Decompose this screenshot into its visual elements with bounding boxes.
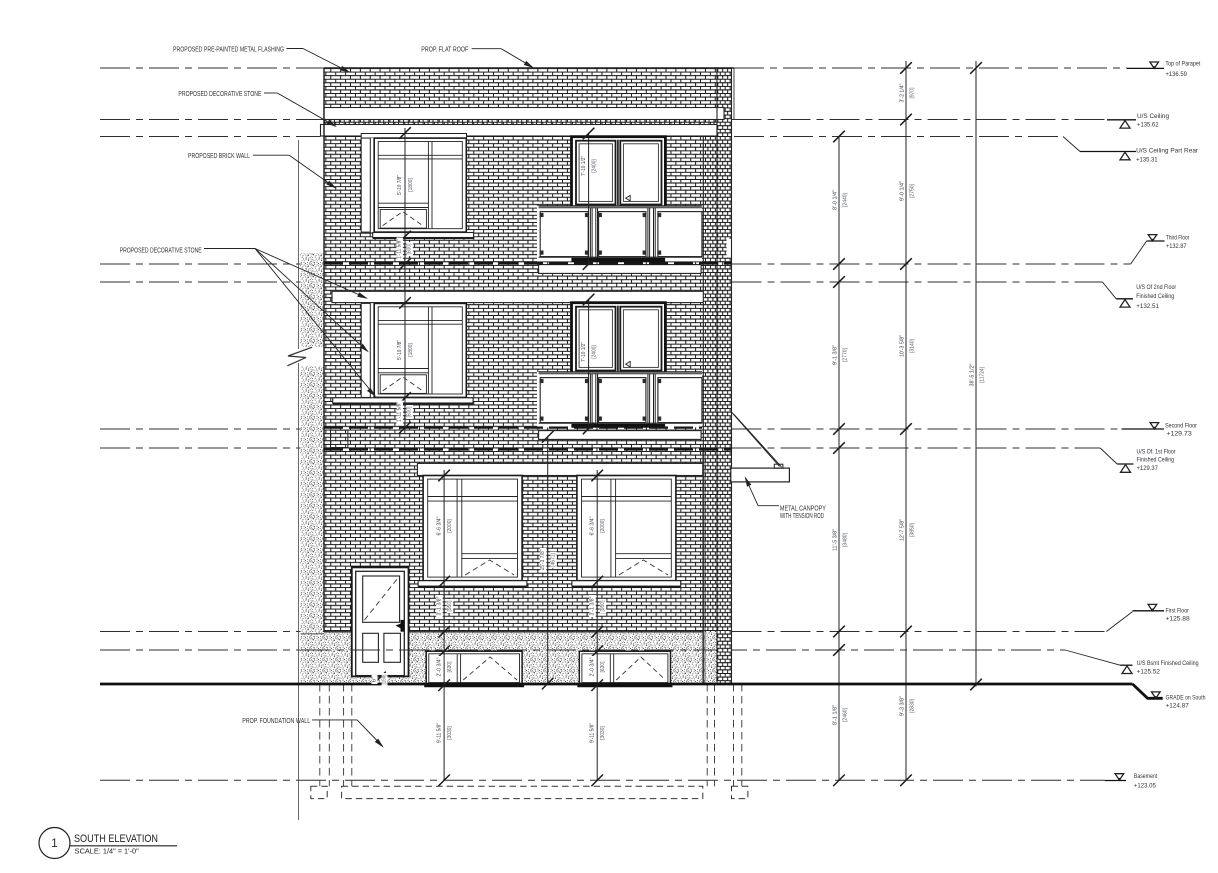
svg-text:[1800]: [1800] [408,343,414,357]
svg-text:+125.52: +125.52 [1137,669,1161,676]
svg-text:9'-0 1/4": 9'-0 1/4" [900,181,906,201]
svg-text:3'-1 3/8": 3'-1 3/8" [589,596,595,615]
svg-text:+135.31: +135.31 [1136,157,1158,164]
svg-text:SCALE: 1/4" = 1'-0": SCALE: 1/4" = 1'-0" [75,849,140,856]
svg-text:38'-5 1/2": 38'-5 1/2" [970,363,976,386]
svg-text:[2400]: [2400] [591,159,597,173]
svg-text:[630]: [630] [600,661,606,672]
svg-text:[2440]: [2440] [843,193,849,207]
svg-text:1: 1 [51,838,57,850]
svg-text:PROPOSED DECORATIVE STONE: PROPOSED DECORATIVE STONE [120,247,202,254]
svg-text:[950]: [950] [447,600,453,611]
svg-text:[11724]: [11724] [980,367,986,383]
svg-text:[950]: [950] [600,600,606,611]
svg-text:U/S Of 2nd Floor: U/S Of 2nd Floor [1136,284,1177,291]
svg-text:[3030]: [3030] [600,726,606,740]
svg-text:Second Floor: Second Floor [1165,423,1198,430]
svg-text:15'-3 7/8": 15'-3 7/8" [540,549,546,570]
svg-text:METAL CANPOPY: METAL CANPOPY [780,506,826,513]
svg-text:Finished Ceiling: Finished Ceiling [1136,293,1174,300]
svg-text:PROPOSED BRICK WALL: PROPOSED BRICK WALL [188,153,250,160]
svg-text:SOUTH ELEVATION: SOUTH ELEVATION [74,833,158,845]
svg-text:+135.62: +135.62 [1137,121,1159,128]
svg-text:5'-10 7/8": 5'-10 7/8" [397,175,403,195]
svg-text:GRADE on South: GRADE on South [1166,695,1206,702]
svg-text:[2460]: [2460] [843,708,849,722]
svg-text:11'-5 3/8": 11'-5 3/8" [833,529,839,551]
svg-text:PROPOSED PRE-PAINTED METAL FLA: PROPOSED PRE-PAINTED METAL FLASHING [173,46,284,53]
svg-text:5'-10 7/8": 5'-10 7/8" [397,340,403,360]
svg-text:2'-0 3/4": 2'-0 3/4" [589,657,595,676]
svg-text:7'-10 1/2": 7'-10 1/2" [581,342,587,362]
svg-text:PROPOSED DECORATIVE STONE: PROPOSED DECORATIVE STONE [178,91,261,98]
svg-text:[970]: [970] [910,87,916,98]
svg-text:3'-2 1/4": 3'-2 1/4" [900,83,906,102]
svg-text:1'-11 5/8": 1'-11 5/8" [397,239,403,259]
svg-text:Basement: Basement [1134,773,1157,780]
svg-text:8'-1 1/8": 8'-1 1/8" [833,705,839,725]
svg-text:10'-3 5/8": 10'-3 5/8" [900,335,906,357]
svg-text:[3030]: [3030] [447,726,453,740]
svg-text:Third Floor: Third Floor [1166,235,1190,242]
svg-text:7'-10 1/2": 7'-10 1/2" [581,156,587,176]
svg-text:6'-6 3/4": 6'-6 3/4" [589,516,595,535]
svg-text:[630]: [630] [447,661,453,672]
svg-text:8'-0 1/4": 8'-0 1/4" [833,190,839,210]
svg-text:6": 6" [372,676,378,682]
svg-text:PROP. FLAT ROOF: PROP. FLAT ROOF [421,46,468,53]
svg-text:[3140]: [3140] [910,339,916,353]
svg-text:3'-1 3/8": 3'-1 3/8" [436,596,442,615]
svg-text:+125.88: +125.88 [1166,616,1191,623]
svg-text:U/S Ceiling Part Rear: U/S Ceiling Part Rear [1136,148,1199,155]
svg-text:[600]: [600] [407,243,413,254]
svg-text:U/S Of. 1st Floor: U/S Of. 1st Floor [1137,449,1177,456]
svg-text:[1800]: [1800] [408,178,414,192]
svg-text:[2770]: [2770] [843,348,849,362]
svg-text:12'-7 5/8": 12'-7 5/8" [900,519,906,541]
svg-text:+124.87: +124.87 [1166,703,1190,710]
svg-text:U/S Bsmt Finished Ceiling: U/S Bsmt Finished Ceiling [1137,660,1199,667]
svg-text:Top of Parapet: Top of Parapet [1165,61,1200,68]
svg-text:[150]: [150] [382,674,388,684]
svg-text:[2000]: [2000] [600,519,606,533]
svg-text:First Floor: First Floor [1166,608,1190,615]
svg-text:[2830]: [2830] [910,699,916,713]
svg-text:WITH TENSION ROD: WITH TENSION ROD [780,513,824,520]
svg-text:[2400]: [2400] [591,345,597,359]
svg-text:9'-11 5/8": 9'-11 5/8" [436,723,442,743]
svg-text:9'-3 3/8": 9'-3 3/8" [900,696,906,716]
svg-text:[600]: [600] [407,406,413,417]
svg-text:1'-11 5/8": 1'-11 5/8" [397,402,403,422]
svg-text:[2000]: [2000] [447,519,453,533]
svg-text:+136.59: +136.59 [1165,71,1187,78]
svg-text:9'-11 5/8": 9'-11 5/8" [589,723,595,743]
svg-text:U/S Ceiling: U/S Ceiling [1137,113,1169,120]
svg-text:2'-0 3/4": 2'-0 3/4" [436,657,442,676]
svg-text:+129.73: +129.73 [1166,431,1192,438]
svg-text:PROP. FOUNDATION WALL: PROP. FOUNDATION WALL [242,718,310,725]
svg-text:[2750]: [2750] [910,184,916,198]
svg-text:9'-1 3/8": 9'-1 3/8" [833,345,839,365]
svg-text:+129.37: +129.37 [1137,465,1159,472]
svg-text:+123.05: +123.05 [1134,783,1156,790]
svg-text:6'-6 3/4": 6'-6 3/4" [436,516,442,535]
svg-text:+132.51: +132.51 [1136,303,1159,310]
svg-text:[3850]: [3850] [910,523,916,537]
svg-text:+132.87: +132.87 [1166,243,1187,250]
svg-text:Finished Ceiling: Finished Ceiling [1137,456,1175,463]
svg-text:[4671]: [4671] [551,553,557,567]
svg-text:[3480]: [3480] [843,533,849,547]
